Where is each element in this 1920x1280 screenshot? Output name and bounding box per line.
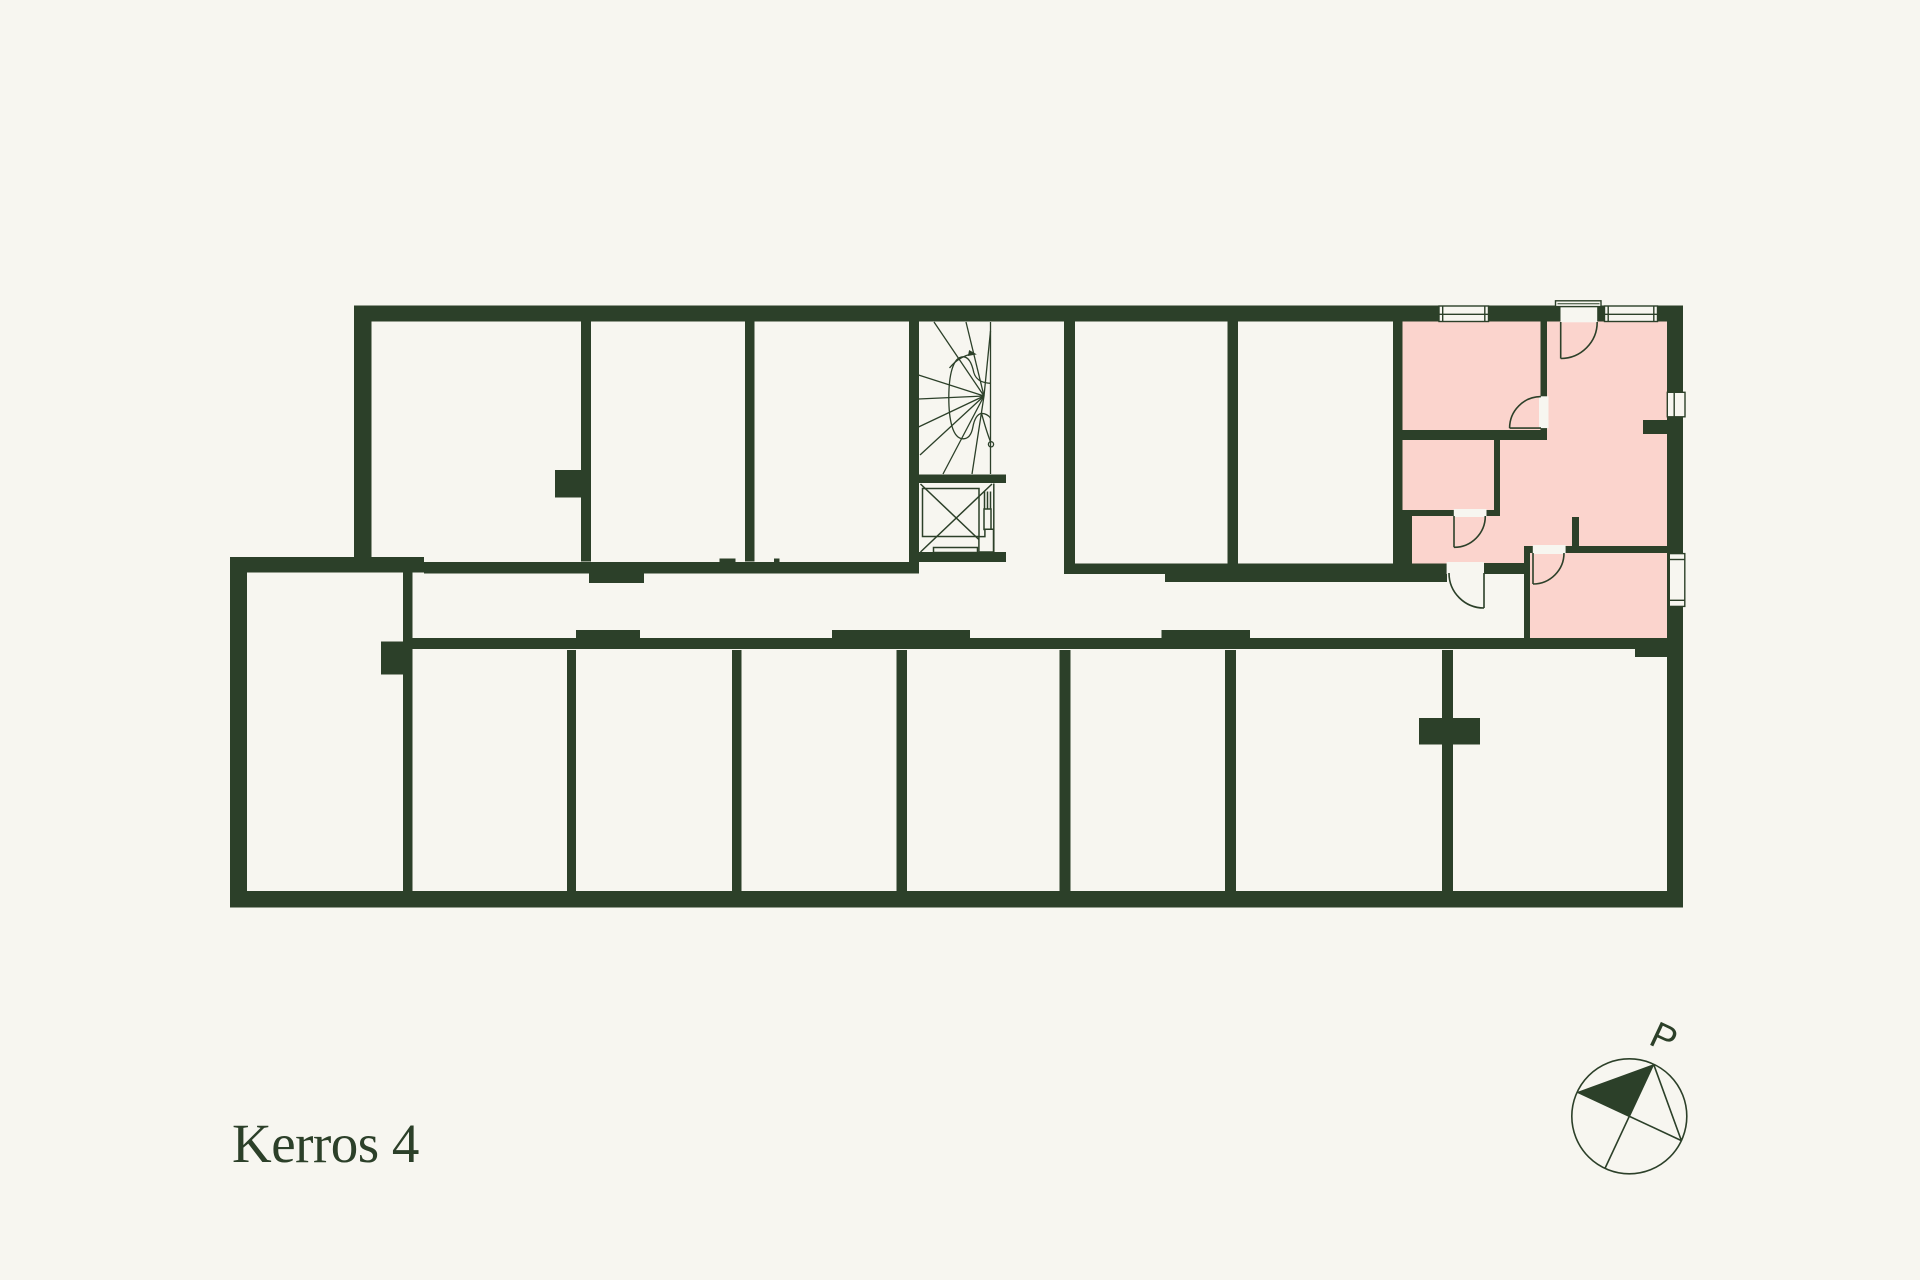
svg-text:Kerros 4: Kerros 4 [232, 1113, 419, 1174]
